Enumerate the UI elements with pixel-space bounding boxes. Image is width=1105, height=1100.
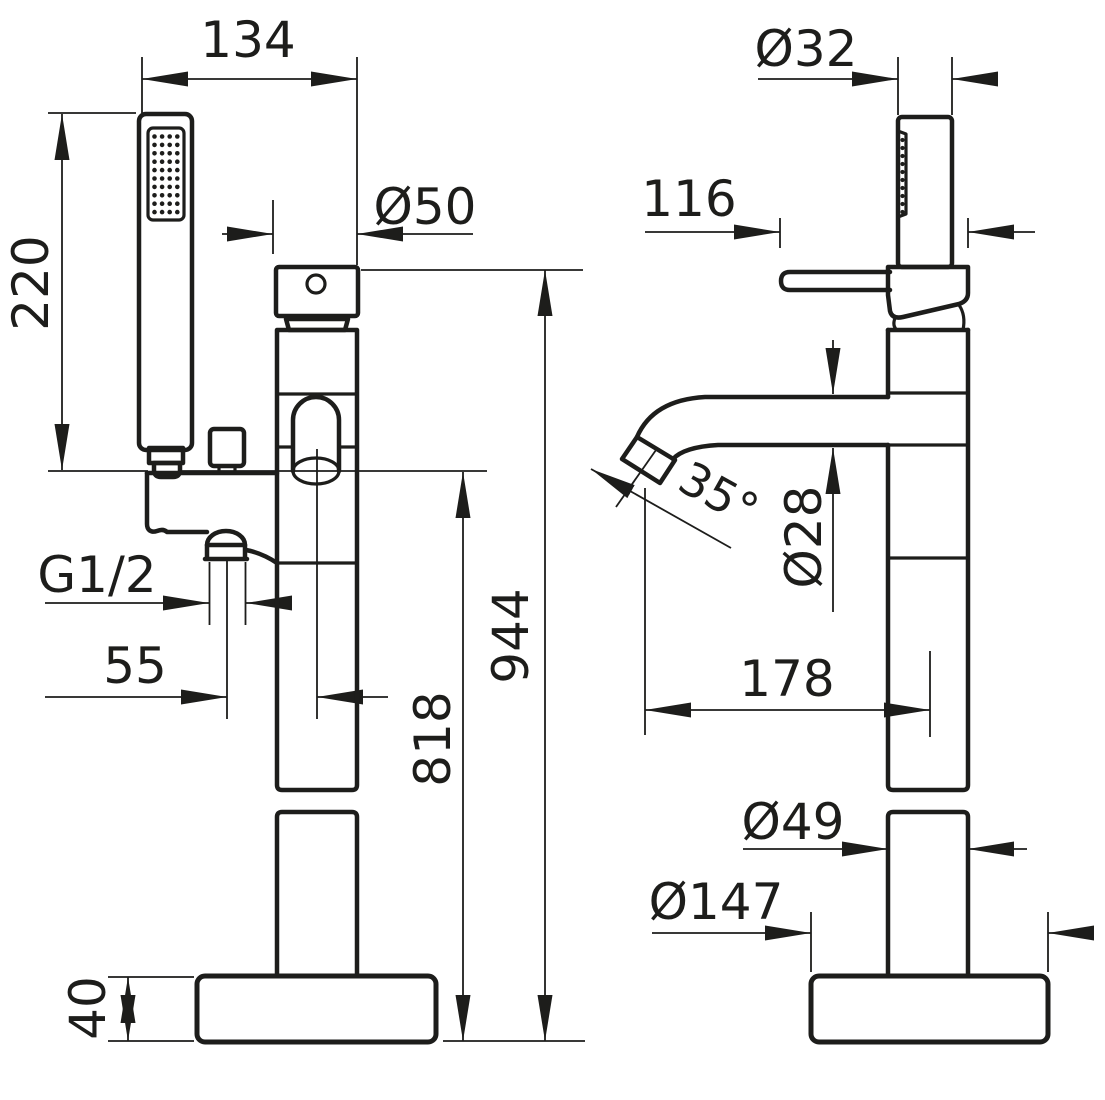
dim-label-lever-length: 116 [641, 170, 736, 228]
column-top-front [276, 267, 358, 330]
sprayface-side-dots [900, 138, 904, 214]
base-side [811, 976, 1048, 1042]
base-front [197, 976, 436, 1042]
dim-label-column-diameter: Ø49 [742, 793, 845, 851]
dim-label-total-height: 944 [482, 588, 540, 683]
spout-side [622, 397, 888, 483]
dim-label-inlet-thread: G1/2 [37, 546, 156, 604]
dim-label-spout-angle: 35° [670, 451, 768, 538]
lever-and-body-side [781, 267, 968, 330]
dim-label-spout-diameter: Ø28 [775, 486, 833, 589]
dim-label-base-height: 40 [59, 976, 117, 1040]
mixer-body-front [147, 473, 277, 563]
dim-label-inlet-offset: 55 [103, 637, 167, 695]
dim-label-base-diameter: Ø147 [649, 873, 784, 931]
diverter-knob [210, 429, 244, 473]
hand-shower-sprayface [148, 128, 184, 220]
side-view: Ø32 116 35° Ø28 178 Ø49 Ø147 [591, 20, 1092, 1042]
dim-label-handset-height: 220 [2, 235, 60, 330]
inlet-nut [205, 545, 247, 559]
hand-shower-front [139, 114, 192, 477]
lever-handle [781, 272, 890, 290]
dim-label-overall-width: 134 [200, 11, 295, 69]
riser-column-side [888, 330, 968, 976]
cartridge-body [888, 267, 968, 318]
dim-label-handset-diameter: Ø32 [755, 20, 858, 78]
front-view: 134 220 Ø50 G1/2 55 818 944 40 [2, 11, 585, 1042]
technical-drawing: 134 220 Ø50 G1/2 55 818 944 40 [0, 0, 1105, 1100]
dim-label-spout-height: 818 [404, 691, 462, 786]
cap-hole [307, 275, 325, 293]
sprayface-nozzle-dots [152, 134, 179, 214]
dim-label-spout-reach: 178 [739, 650, 834, 708]
dim-label-head-diameter: Ø50 [374, 178, 477, 236]
hand-shower-side [898, 117, 952, 267]
drawing-canvas: 134 220 Ø50 G1/2 55 818 944 40 [0, 0, 1105, 1100]
